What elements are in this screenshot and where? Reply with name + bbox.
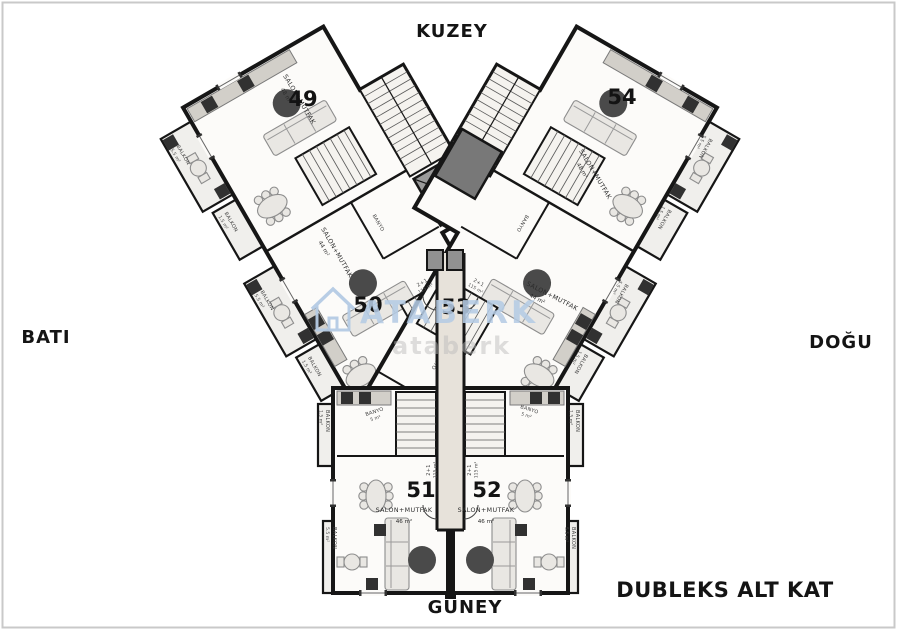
plan-title: DUBLEKS ALT KAT	[616, 578, 834, 602]
balcony-area: 1.5 m²	[318, 410, 324, 425]
unit-51-number: 51	[406, 478, 435, 502]
balcony-label: BALKON	[324, 410, 330, 432]
unit-total-area: 115 m²	[433, 462, 439, 479]
rug	[466, 546, 494, 574]
unit-51-room-name: SALON+MUTFAK	[376, 507, 433, 514]
party-wall	[446, 530, 455, 593]
unit-52-number: 52	[472, 478, 501, 502]
window	[514, 590, 542, 596]
balcony-label: BALKON	[574, 410, 580, 432]
balcony-area: 1.5 m²	[568, 410, 574, 425]
unit-52-room-name: SALON+MUTFAK	[458, 507, 515, 514]
duplex-stairs-51	[396, 392, 436, 456]
shaft	[447, 250, 463, 270]
balcony-area: 5.5 m²	[324, 527, 330, 542]
sink	[359, 392, 371, 404]
compass-south: GÜNEY	[428, 596, 503, 618]
stove	[341, 392, 353, 404]
duplex-stairs-52	[465, 392, 505, 456]
compass-west: BATI	[21, 327, 70, 348]
stove	[548, 392, 560, 404]
compass-east: DOĞU	[809, 331, 873, 353]
balcony-label: BALKON	[331, 527, 337, 549]
plant	[523, 578, 535, 590]
plant	[515, 524, 527, 536]
watermark-brand: ATABERK	[360, 295, 538, 331]
sofa	[385, 518, 409, 590]
window	[359, 590, 387, 596]
sink	[530, 392, 542, 404]
rug	[408, 546, 436, 574]
plant	[366, 578, 378, 590]
compass-north: KUZEY	[416, 21, 488, 42]
unit-49-number: 49	[288, 87, 317, 111]
unit-54-number: 54	[607, 85, 636, 109]
unit-type: 2+1	[467, 464, 473, 475]
unit-51-room-area: 46 m²	[396, 518, 413, 525]
floor-plan-canvas: BALKON5.5 m² BALKON1.5 m² BALKON5.5 m² B…	[0, 0, 897, 630]
plant	[374, 524, 386, 536]
balcony-area: 5.5 m²	[563, 527, 569, 542]
window	[565, 479, 571, 507]
watermark-secondary: ataberk	[392, 332, 511, 360]
unit-total-area: 115 m²	[474, 462, 480, 479]
unit-52-room-area: 46 m²	[478, 518, 495, 525]
sofa	[492, 518, 516, 590]
balcony-label: BALKON	[570, 527, 576, 549]
unit-type: 2+1	[426, 464, 432, 475]
shaft	[427, 250, 443, 270]
floor-plan-drawing: BALKON5.5 m² BALKON1.5 m² BALKON5.5 m² B…	[0, 0, 897, 630]
window	[330, 479, 336, 507]
